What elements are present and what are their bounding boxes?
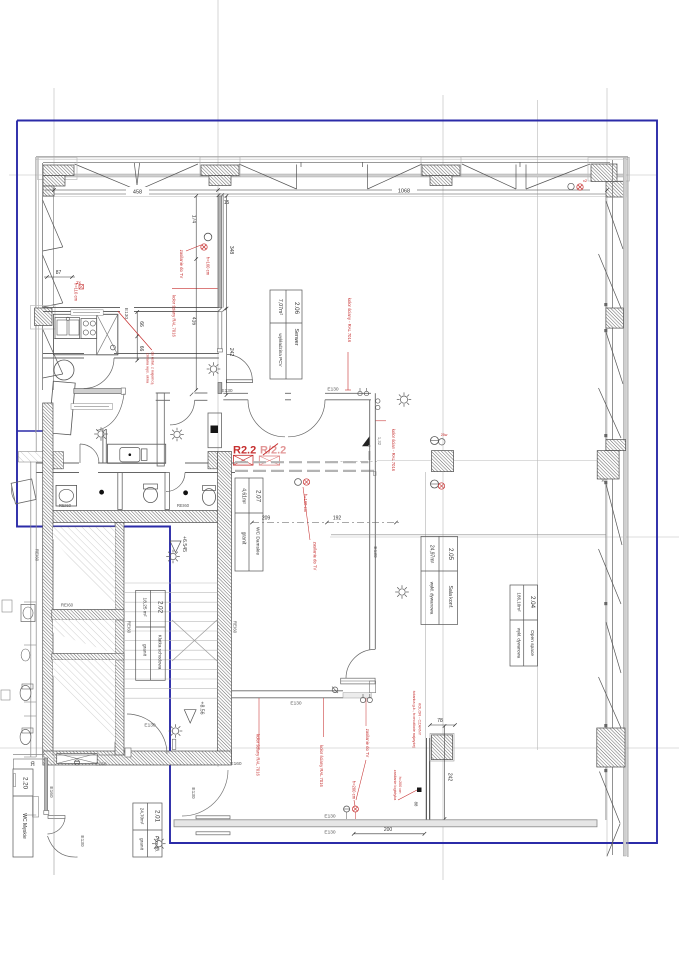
svg-text:Serwer: Serwer	[293, 328, 299, 345]
svg-text:E130: E130	[190, 787, 196, 799]
svg-text:1,32: 1,32	[377, 437, 382, 446]
svg-text:E160: E160	[230, 761, 242, 767]
svg-text:7,07m²: 7,07m²	[277, 299, 283, 315]
svg-text:66: 66	[138, 346, 144, 352]
svg-text:4,61m²: 4,61m²	[241, 488, 247, 504]
svg-text:kolor ścian - RAL 7016: kolor ścian - RAL 7016	[391, 429, 396, 472]
svg-text:h=160 cm: h=160 cm	[206, 257, 211, 276]
svg-text:87: 87	[56, 270, 62, 276]
svg-text:E130: E130	[144, 723, 156, 729]
svg-text:24,70m²: 24,70m²	[140, 808, 145, 825]
svg-text:zasilanie do TV: zasilanie do TV	[179, 250, 184, 279]
svg-text:granit: granit	[142, 644, 148, 657]
svg-text:granit: granit	[241, 532, 247, 545]
svg-text:2.06: 2.06	[293, 302, 300, 315]
svg-text:24,97m²: 24,97m²	[429, 545, 435, 564]
svg-text:209: 209	[262, 516, 271, 522]
svg-text:wykł. dywanowa: wykł. dywanowa	[517, 628, 522, 659]
svg-text:18,25 m²: 18,25 m²	[142, 598, 148, 617]
svg-text:88: 88	[414, 802, 419, 807]
svg-text:kolor ściany RAL 7016: kolor ściany RAL 7016	[172, 295, 177, 337]
svg-text:ścianka g-k., h=możliwie najwy: ścianka g-k., h=możliwie najwyżej	[412, 691, 416, 748]
svg-text:REI60: REI60	[177, 503, 190, 508]
svg-text:348: 348	[228, 246, 234, 255]
svg-text:E130: E130	[324, 830, 336, 836]
svg-text:2.20: 2.20	[22, 777, 29, 790]
svg-text:zasilanie do TV: zasilanie do TV	[365, 729, 370, 758]
svg-text:1068: 1068	[398, 189, 410, 195]
svg-text:REI60: REI60	[233, 621, 238, 634]
svg-text:192: 192	[333, 516, 342, 522]
svg-text:186,10m²: 186,10m²	[517, 592, 522, 612]
svg-text:h=160 cm: h=160 cm	[303, 494, 308, 513]
svg-text:REI60: REI60	[35, 549, 40, 562]
svg-text:do ustal. z najemcą: do ustal. z najemcą	[151, 352, 155, 386]
svg-text:zmiana wys. okna: zmiana wys. okna	[146, 353, 150, 384]
svg-text:WC Męskie: WC Męskie	[21, 813, 27, 839]
svg-text:R2.2: R2.2	[233, 445, 256, 457]
svg-text:242: 242	[447, 773, 453, 782]
svg-text:Klatka schodowa: Klatka schodowa	[158, 635, 163, 670]
svg-text:E130: E130	[290, 701, 302, 707]
svg-text:wykładzina PCV: wykładzina PCV	[278, 333, 283, 367]
svg-text:REI60: REI60	[61, 603, 74, 608]
svg-text:h=110 cm: h=110 cm	[74, 283, 79, 302]
svg-text:h=200 cm: h=200 cm	[352, 781, 357, 800]
svg-text:242: 242	[228, 348, 234, 357]
svg-text:E160: E160	[48, 786, 54, 798]
svg-text:Я: Я	[30, 762, 34, 768]
svg-text:REI60: REI60	[127, 621, 132, 634]
svg-text:+6.545: +6.545	[181, 536, 187, 552]
svg-text:174: 174	[191, 215, 197, 224]
svg-text:wykł. dywanowa: wykł. dywanowa	[430, 582, 435, 615]
svg-text:E130: E130	[324, 814, 336, 820]
svg-text:granit: granit	[139, 838, 145, 851]
svg-text:kolor ściany RAL 7016: kolor ściany RAL 7016	[256, 734, 261, 776]
svg-text:2.01: 2.01	[154, 810, 161, 823]
svg-text:kolor ściany - RAL 7016: kolor ściany - RAL 7016	[347, 298, 352, 343]
svg-text:2.02: 2.02	[157, 601, 164, 614]
svg-text:2.07: 2.07	[255, 490, 262, 503]
svg-text:Open space: Open space	[529, 630, 535, 656]
svg-text:WC Damskie: WC Damskie	[255, 527, 261, 555]
svg-text:200: 200	[384, 827, 393, 833]
svg-text:kolor ściany RAL 7016: kolor ściany RAL 7016	[319, 745, 324, 787]
svg-text:E160: E160	[95, 762, 107, 768]
svg-text:416: 416	[191, 317, 197, 326]
svg-text:+8.56: +8.56	[199, 701, 205, 714]
svg-text:66: 66	[138, 321, 144, 327]
svg-text:Я: Я	[601, 478, 604, 483]
svg-text:78: 78	[437, 718, 443, 724]
svg-text:REI60: REI60	[59, 503, 72, 508]
svg-text:zasilanie logistyka: zasilanie logistyka	[393, 770, 397, 801]
svg-text:KOLOR - CZARNY: KOLOR - CZARNY	[418, 703, 422, 736]
svg-text:h=200 cm: h=200 cm	[398, 777, 402, 794]
svg-text:458: 458	[133, 190, 142, 196]
svg-text:Sala konf.: Sala konf.	[447, 585, 453, 608]
svg-text:25w: 25w	[441, 433, 448, 437]
svg-text:E130: E130	[372, 546, 378, 558]
svg-text:zasilanie do TV: zasilanie do TV	[313, 542, 318, 571]
svg-text:2.04: 2.04	[529, 596, 536, 609]
svg-text:2.05: 2.05	[447, 548, 454, 561]
svg-text:E130: E130	[79, 835, 85, 847]
svg-text:E130: E130	[327, 387, 339, 393]
